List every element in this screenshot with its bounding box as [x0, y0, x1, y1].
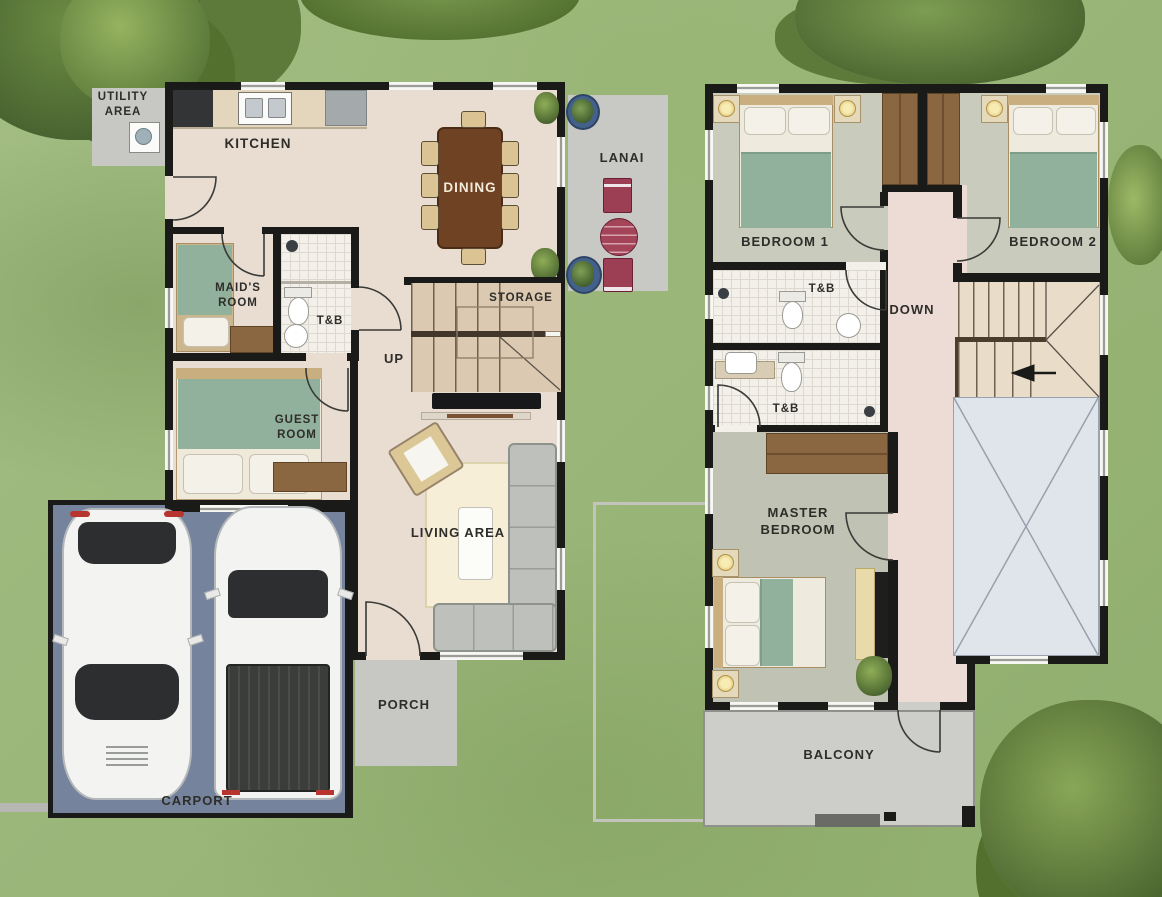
taillight: [316, 790, 334, 795]
room-label-bedroom2: BEDROOM 2: [1000, 234, 1106, 251]
car-pickup-icon: [214, 506, 342, 800]
tree-bottom-right: [980, 700, 1162, 897]
window: [705, 386, 713, 410]
wall: [880, 192, 888, 206]
wall: [168, 227, 358, 234]
taillight: [70, 511, 90, 517]
side-table: [230, 326, 276, 353]
accent-chair-cushion: [403, 436, 448, 482]
sofa-section-horizontal: [433, 603, 557, 652]
dining-chair: [421, 141, 439, 166]
dining-chair: [461, 111, 486, 128]
room-label-utility: UTILITY AREA: [86, 90, 160, 120]
sink-basin: [268, 98, 286, 118]
wall: [953, 192, 962, 218]
window: [1100, 560, 1108, 606]
balcony-post: [884, 812, 896, 821]
front-door-opening: [366, 652, 420, 660]
lanai-bench-icon: [603, 178, 632, 213]
window: [990, 656, 1048, 664]
balcony-post: [962, 806, 975, 827]
tree-top-center: [300, 0, 580, 40]
tv-icon: [875, 572, 888, 658]
pillow: [1013, 107, 1053, 135]
dining-chair: [501, 173, 519, 198]
room-label-master-bedroom: MASTER BEDROOM: [740, 505, 856, 539]
wall: [967, 656, 975, 710]
stove-icon: [173, 90, 213, 127]
window: [493, 82, 537, 90]
tv-console-icon: [432, 393, 541, 409]
floor-plan-canvas: UTILITY AREA KITCHEN DINING LANAI MAID'S…: [0, 0, 1162, 897]
pillow: [183, 317, 229, 347]
balcony-step: [815, 814, 880, 827]
room-label-tb1: T&B: [305, 314, 355, 329]
stair-rail-cap: [545, 331, 561, 337]
wall: [882, 185, 962, 192]
hood-grille: [106, 746, 148, 770]
window: [389, 82, 433, 90]
wall: [888, 432, 898, 513]
lanai-round-table-icon: [600, 218, 638, 256]
potted-plant-icon: [566, 256, 602, 294]
media-shelf-wood: [447, 414, 513, 418]
wall: [713, 343, 888, 350]
room-label-tb-upper: T&B: [797, 282, 847, 297]
bed-headboard: [1008, 95, 1099, 105]
window: [557, 420, 565, 462]
door-opening: [306, 353, 347, 361]
stair-treads: [411, 337, 521, 392]
door-opening: [846, 262, 886, 270]
closet-icon: [882, 93, 918, 185]
window: [1100, 122, 1108, 178]
indoor-plant-icon: [856, 656, 892, 696]
bed-headboard: [714, 577, 723, 668]
room-label-living-area: LIVING AREA: [404, 525, 512, 542]
window: [705, 295, 713, 319]
bed-blanket: [760, 579, 793, 666]
window: [705, 468, 713, 514]
pillow: [183, 454, 243, 494]
dining-chair: [501, 141, 519, 166]
dining-chair: [461, 248, 486, 265]
pillow: [788, 107, 830, 135]
closet-icon: [927, 93, 960, 185]
window: [165, 430, 173, 470]
dining-chair: [421, 205, 439, 230]
bath-divider: [281, 281, 351, 284]
window: [557, 137, 565, 187]
window: [1100, 295, 1108, 355]
nightstand-lamp-icon: [981, 95, 1008, 123]
dining-chair: [501, 205, 519, 230]
stairs-label-up: UP: [376, 351, 412, 368]
stairs-label-down: DOWN: [876, 302, 948, 319]
indoor-plant-icon: [534, 92, 559, 124]
rear-window: [78, 522, 176, 564]
bush-right-edge: [1108, 145, 1162, 265]
windshield: [75, 664, 179, 720]
room-label-tb-lower: T&B: [761, 402, 811, 417]
guest-bed-footboard: [176, 368, 322, 379]
media-cabinet: [855, 568, 875, 660]
room-label-kitchen: KITCHEN: [208, 135, 308, 153]
sofa-section-vertical: [508, 443, 557, 612]
door-opening: [715, 425, 757, 432]
wall: [953, 273, 1100, 282]
nightstand-lamp-icon: [712, 549, 739, 577]
toilet-bowl-icon: [781, 362, 802, 392]
room-label-bedroom1: BEDROOM 1: [732, 234, 838, 251]
potted-plant-icon: [566, 94, 600, 130]
bed-blanket: [741, 152, 831, 228]
dresser-icon: [766, 433, 888, 474]
wall: [918, 84, 927, 192]
sink-basin: [245, 98, 263, 118]
window: [705, 130, 713, 180]
window: [1046, 84, 1086, 93]
coffee-table-icon: [458, 507, 493, 580]
nightstand-lamp-icon: [713, 95, 740, 123]
window: [165, 288, 173, 328]
room-label-lanai: LANAI: [584, 150, 660, 167]
wall: [350, 512, 358, 660]
window: [730, 702, 778, 710]
staircase-down: [958, 282, 1099, 397]
pillow: [1056, 107, 1096, 135]
bed-headboard: [739, 95, 833, 105]
open-to-below-area: [953, 397, 1099, 656]
room-label-maids-room: MAID'S ROOM: [197, 281, 279, 311]
windshield: [228, 570, 328, 618]
window: [737, 84, 779, 93]
stair-treads: [958, 282, 1046, 338]
bed-blanket: [1010, 152, 1097, 228]
door-opening: [165, 176, 173, 219]
toilet-bowl-icon: [782, 301, 803, 329]
washing-machine-drum: [135, 128, 152, 145]
window: [557, 548, 565, 590]
balcony-area: [703, 710, 975, 827]
room-label-porch: PORCH: [368, 697, 440, 714]
lavatory-icon: [725, 352, 757, 374]
window: [440, 652, 523, 660]
lanai-bench-icon: [603, 258, 633, 292]
shower-icon: [718, 288, 729, 299]
shower-icon: [864, 406, 875, 417]
room-label-dining: DINING: [437, 179, 503, 197]
room-label-balcony: BALCONY: [792, 747, 886, 764]
room-label-storage: STORAGE: [478, 291, 564, 306]
taillight: [164, 511, 184, 517]
door-opening: [898, 702, 940, 710]
window: [1100, 430, 1108, 476]
door-opening: [224, 227, 262, 234]
pillow: [725, 625, 760, 666]
nightstand-lamp-icon: [834, 95, 861, 123]
fridge-icon: [325, 90, 367, 126]
car-sedan-icon: [62, 508, 192, 800]
stair-treads: [958, 342, 1046, 397]
bedroom-bench: [273, 462, 347, 492]
wall: [350, 361, 358, 512]
shower-icon: [286, 240, 298, 252]
pillow: [744, 107, 786, 135]
nightstand-lamp-icon: [712, 670, 739, 698]
walkway-stub: [0, 803, 48, 812]
window: [828, 702, 874, 710]
window: [705, 606, 713, 648]
pillow: [725, 582, 760, 623]
lavatory-icon: [836, 313, 861, 338]
room-label-carport: CARPORT: [150, 793, 244, 810]
room-label-guest-room: GUEST ROOM: [256, 413, 338, 443]
wall: [880, 270, 888, 425]
window: [241, 82, 285, 90]
truck-bed: [226, 664, 330, 792]
tree-above-second-floor: [795, 0, 1085, 85]
